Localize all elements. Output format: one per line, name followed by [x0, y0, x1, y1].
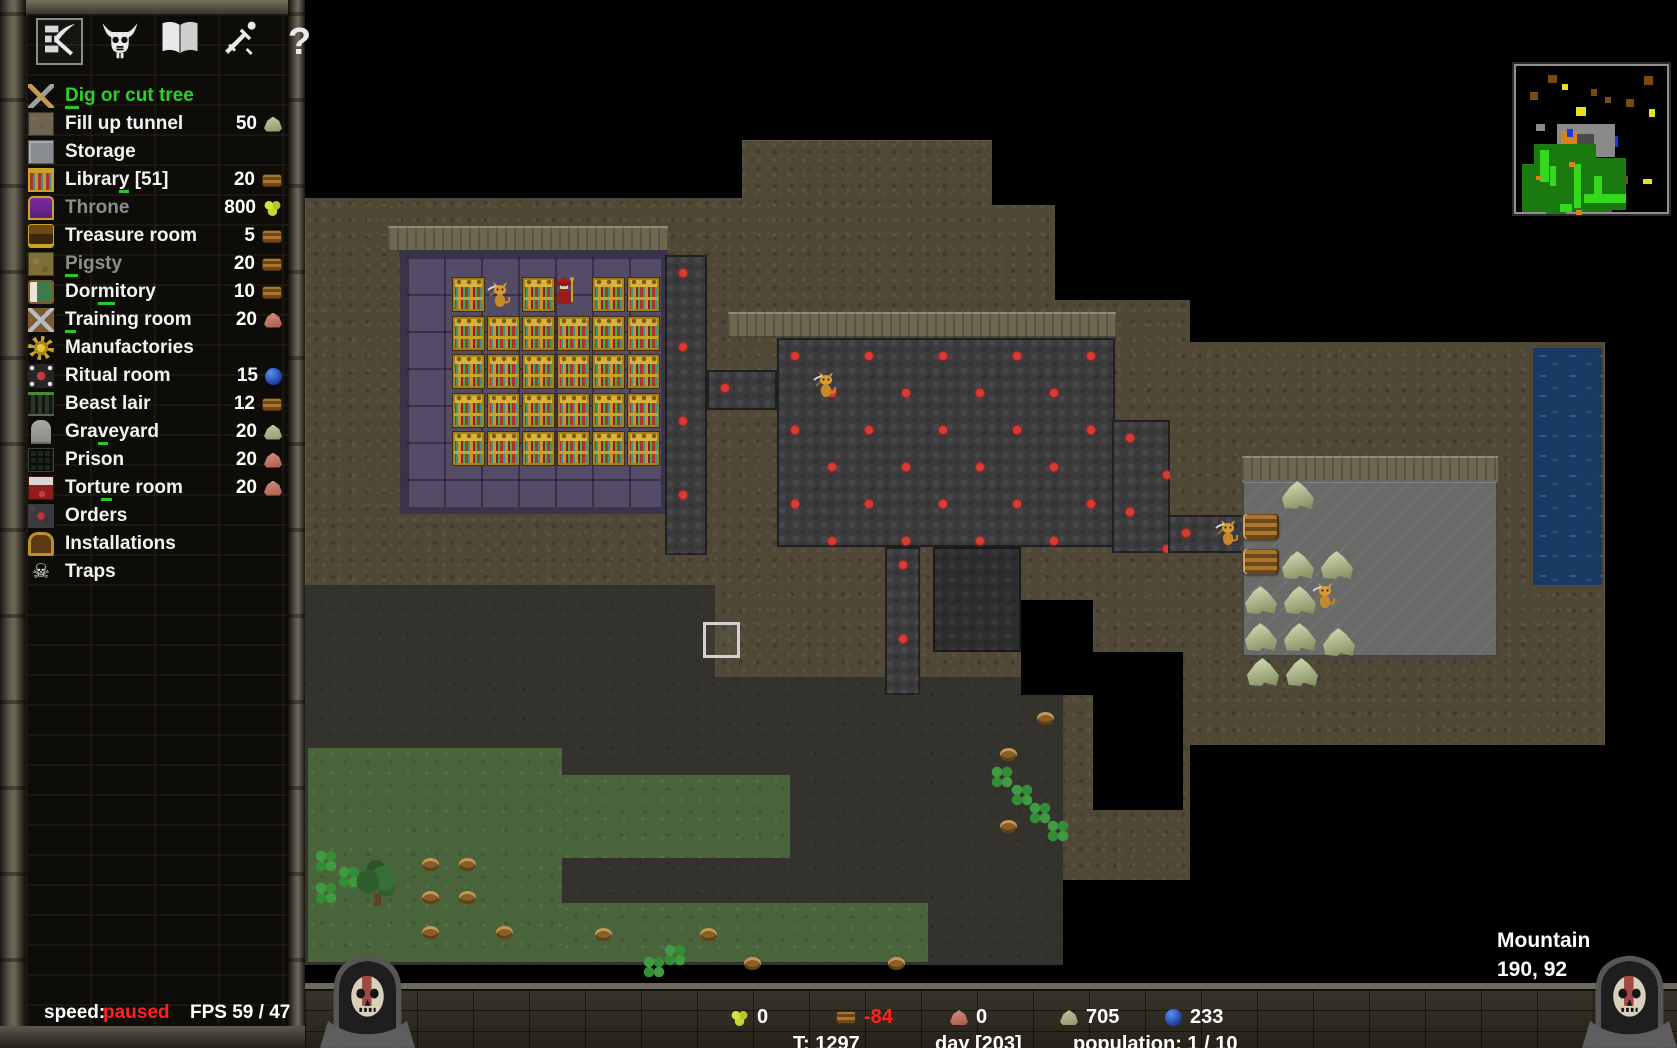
selection-cursor — [703, 622, 740, 658]
bookshelf — [627, 277, 660, 312]
traps-icon: ☠ — [28, 560, 54, 584]
map-region-black — [1055, 205, 1677, 300]
bookshelf — [487, 431, 520, 466]
menu-item-storage[interactable]: Storage — [28, 138, 284, 166]
cost-value: 20 — [236, 477, 257, 499]
wood-icon — [262, 286, 282, 299]
bookshelf — [487, 316, 520, 351]
resource-stone: 705 — [1060, 1006, 1119, 1029]
bookshelf — [627, 354, 660, 389]
menu-item-pigsty[interactable]: Pigsty20 — [28, 250, 284, 278]
bookshelf — [557, 354, 590, 389]
open-book-icon — [159, 18, 201, 65]
toolbar-tab-help[interactable]: ? — [276, 18, 323, 65]
question-mark-icon: ? — [288, 22, 311, 62]
frame-left — [0, 0, 26, 1048]
demon-skull-icon — [99, 18, 141, 65]
imp-creature[interactable] — [486, 280, 514, 315]
tree — [354, 860, 400, 908]
training-icon — [28, 308, 54, 332]
bookshelf — [522, 354, 555, 389]
minimap-blob-brown — [1591, 89, 1597, 96]
mana-icon — [1165, 1009, 1182, 1026]
map-region-black — [305, 140, 742, 198]
tree-stump — [422, 926, 439, 939]
menu-item-label: Fill up tunnel — [65, 113, 183, 135]
stone-icon — [264, 117, 282, 132]
build-menu: Dig or cut treeFill up tunnel50StorageLi… — [28, 82, 284, 586]
graveyard-icon — [31, 420, 51, 444]
map-region-cobble — [707, 370, 777, 410]
map-region-walltop — [728, 312, 1116, 338]
iron-icon — [264, 313, 282, 328]
bookshelf — [487, 393, 520, 428]
stone-icon — [1060, 1010, 1078, 1025]
storage-icon — [28, 140, 54, 164]
bush — [313, 880, 339, 906]
bookshelf — [452, 316, 485, 351]
cost-value: 12 — [234, 393, 255, 415]
menu-item-label: Training room — [65, 309, 192, 331]
cost-value: 20 — [236, 449, 257, 471]
minimap-blob-yellow — [1576, 107, 1586, 116]
minimap-blob-lightgreen — [1540, 150, 1549, 182]
map-region-black — [1021, 600, 1093, 695]
menu-item-label: Library [51] — [65, 169, 169, 191]
bookshelf — [452, 431, 485, 466]
toolbar-tab-minions[interactable] — [96, 18, 143, 65]
tree-stump — [459, 891, 476, 904]
bookshelf — [452, 393, 485, 428]
beast-icon — [28, 392, 54, 416]
map-region-black — [1093, 652, 1183, 810]
turn-counter: T: 1297 — [793, 1033, 860, 1048]
menu-item-label: Installations — [65, 533, 176, 555]
tree-stump — [1000, 820, 1017, 833]
fps-counter: FPS 59 / 47 — [190, 1002, 290, 1024]
game-screen: Mountain 190, 92 0-840705233T: 1297day [… — [0, 0, 1677, 1048]
imp-creature[interactable] — [812, 370, 840, 405]
menu-item-label: Treasure room — [65, 225, 197, 247]
menu-item-training-room[interactable]: Training room20 — [28, 306, 284, 334]
bookshelf — [592, 354, 625, 389]
minimap-blob-brown — [1605, 97, 1611, 103]
bottom-bar: 0-840705233T: 1297day [203]population: 1… — [305, 983, 1677, 1048]
minimap-blob-lightgreen — [1594, 176, 1602, 202]
resource-mana: 233 — [1165, 1006, 1223, 1029]
menu-item-beast-lair[interactable]: Beast lair12 — [28, 390, 284, 418]
location-label: Mountain — [1497, 929, 1590, 953]
bookshelf — [557, 316, 590, 351]
cost-value: 5 — [244, 225, 255, 247]
treasure-icon — [28, 224, 54, 248]
wood-icon — [262, 174, 282, 187]
cost-value: 20 — [234, 253, 255, 275]
bush — [641, 954, 667, 980]
menu-item-label: Pigsty — [65, 253, 122, 275]
tree-stump — [1037, 712, 1054, 725]
menu-item-dormitory[interactable]: Dormitory10 — [28, 278, 284, 306]
menu-item-label: Traps — [65, 561, 116, 583]
bookshelf — [522, 393, 555, 428]
bookshelf — [557, 393, 590, 428]
minimap-blob-lightgreen — [1550, 166, 1556, 186]
menu-item-label: Manufactories — [65, 337, 194, 359]
menu-item-label: Torture room — [65, 477, 183, 499]
frame-bottom — [0, 1026, 305, 1048]
wood-pile — [1243, 514, 1279, 539]
tree-stump — [459, 858, 476, 871]
map-region-black — [1190, 745, 1605, 880]
stone-icon — [264, 425, 282, 440]
wood-icon — [262, 230, 282, 243]
menu-item-label: Orders — [65, 505, 127, 527]
iron-icon — [950, 1010, 968, 1025]
menu-item-label: Beast lair — [65, 393, 151, 415]
tree-stump — [700, 928, 717, 941]
map-region-walltop — [388, 226, 668, 252]
tree-stump — [888, 957, 905, 970]
menu-item-label: Graveyard — [65, 421, 159, 443]
minimap-blob-orange — [1536, 176, 1541, 180]
bookshelf — [592, 393, 625, 428]
minimap-blob-yellow — [1562, 84, 1568, 90]
map-region-cobble — [665, 255, 707, 555]
bookshelf — [592, 277, 625, 312]
frame-right — [288, 0, 305, 1048]
toolbar: ? — [36, 18, 323, 65]
toolbar-tab-build[interactable] — [36, 18, 83, 65]
iron-icon — [264, 481, 282, 496]
resource-gold: 0 — [730, 1006, 768, 1029]
map-region-black — [1190, 300, 1677, 342]
resource-wood: -84 — [836, 1006, 893, 1029]
skull-statue-icon — [1582, 950, 1677, 1048]
resource-iron-value: 0 — [976, 1006, 987, 1029]
bookshelf — [627, 393, 660, 428]
dig-icon — [28, 84, 54, 108]
cost-value: 800 — [224, 197, 256, 219]
cursor-coordinates: 190, 92 — [1497, 958, 1567, 982]
map-region-cobble — [885, 547, 920, 695]
bush — [1045, 818, 1071, 844]
wood-icon — [836, 1011, 856, 1024]
ritual-icon — [28, 364, 54, 388]
library-icon — [28, 168, 54, 192]
minimap-blob-orange — [1576, 210, 1582, 215]
gold-icon — [263, 200, 282, 216]
mana-icon — [265, 368, 282, 385]
resource-stone-value: 705 — [1086, 1006, 1119, 1029]
sword-icon — [220, 19, 260, 64]
bookshelf — [522, 316, 555, 351]
minimap-blob-lightgreen — [1560, 204, 1572, 212]
bookshelf — [452, 277, 485, 312]
resource-wood-value: -84 — [864, 1006, 893, 1029]
menu-item-label: Dormitory — [65, 281, 156, 303]
menu-item-label: Prison — [65, 449, 124, 471]
bookshelf — [592, 316, 625, 351]
menu-item-torture-room[interactable]: Torture room20 — [28, 474, 284, 502]
menu-item-prison[interactable]: Prison20 — [28, 446, 284, 474]
resource-mana-value: 233 — [1190, 1006, 1223, 1029]
prison-icon — [28, 448, 54, 472]
bookshelf — [522, 431, 555, 466]
skull-statue-icon — [320, 950, 415, 1048]
menu-item-installations[interactable]: Installations — [28, 530, 284, 558]
map-region-water — [1533, 348, 1602, 585]
menu-item-throne[interactable]: Throne800 — [28, 194, 284, 222]
frame-top — [0, 0, 305, 14]
manufactory-icon — [28, 336, 54, 360]
menu-item-manufactories[interactable]: Manufactories — [28, 334, 284, 362]
menu-item-orders[interactable]: Orders — [28, 502, 284, 530]
tree-stump — [1000, 748, 1017, 761]
imp-creature[interactable] — [1214, 518, 1242, 553]
dormitory-icon — [28, 280, 54, 304]
bookshelf — [627, 431, 660, 466]
map-region-storage — [1242, 480, 1498, 657]
day-counter: day [203] — [935, 1033, 1022, 1048]
menu-item-treasure-room[interactable]: Treasure room5 — [28, 222, 284, 250]
cost-value: 15 — [237, 365, 258, 387]
cost-value: 20 — [234, 169, 255, 191]
minimap-blob-blue — [1615, 136, 1618, 147]
bookshelf — [452, 354, 485, 389]
menu-item-library-51[interactable]: Library [51]20 — [28, 166, 284, 194]
speed-label: speed: — [44, 1002, 105, 1024]
imp-creature[interactable] — [1311, 581, 1339, 616]
minimap-blob-brown — [1530, 92, 1538, 100]
minimap-blob-brown — [1626, 99, 1634, 107]
bookshelf — [627, 316, 660, 351]
minimap[interactable] — [1514, 64, 1669, 214]
throne-icon — [28, 196, 54, 220]
menu-item-label: Throne — [65, 197, 129, 219]
population-counter: population: 1 / 10 — [1073, 1033, 1237, 1048]
status-row: speed: paused FPS 59 / 47 — [0, 1002, 305, 1028]
menu-item-label: Ritual room — [65, 365, 171, 387]
sidebar: ? Dig or cut treeFill up tunnel50Storage… — [0, 0, 305, 1048]
wood-pile — [1243, 549, 1279, 574]
tree-stump — [744, 957, 761, 970]
map-region-cobble_dim — [933, 547, 1021, 652]
minimap-blob-yellow — [1643, 179, 1652, 184]
speed-value[interactable]: paused — [103, 1002, 170, 1024]
menu-item-fill-up-tunnel[interactable]: Fill up tunnel50 — [28, 110, 284, 138]
map-region-black — [1605, 140, 1677, 965]
menu-item-traps[interactable]: ☠Traps — [28, 558, 284, 586]
map-region-grass — [562, 775, 790, 858]
minimap-blob-blue — [1567, 129, 1573, 137]
tree-stump — [422, 891, 439, 904]
fill-icon — [28, 112, 54, 136]
keeper-creature[interactable] — [549, 274, 579, 311]
bookshelf — [592, 431, 625, 466]
cost-value: 20 — [236, 421, 257, 443]
wood-icon — [262, 398, 282, 411]
gold-icon — [730, 1010, 749, 1026]
torture-icon — [28, 476, 54, 500]
cost-value: 10 — [234, 281, 255, 303]
minimap-blob-lightgreen — [1574, 164, 1581, 208]
minimap-blob-brown — [1548, 75, 1557, 83]
resource-iron: 0 — [950, 1006, 987, 1029]
menu-item-graveyard[interactable]: Graveyard20 — [28, 418, 284, 446]
map-region-walltop — [1242, 456, 1498, 482]
minimap-blob-brown — [1644, 76, 1653, 85]
wood-icon — [262, 258, 282, 271]
cost-value: 50 — [236, 113, 257, 135]
bookshelf — [487, 354, 520, 389]
toolbar-tab-library[interactable] — [156, 18, 203, 65]
bookshelf — [557, 431, 590, 466]
minimap-blob-lightgreen — [1584, 194, 1626, 203]
orders-icon — [28, 504, 54, 528]
iron-icon — [264, 453, 282, 468]
map-region-grass — [562, 903, 928, 962]
map-region-cobble — [1112, 420, 1170, 553]
installations-icon — [28, 532, 54, 556]
menu-item-label: Storage — [65, 141, 136, 163]
pigsty-icon — [28, 252, 54, 276]
toolbar-tab-military[interactable] — [216, 18, 263, 65]
tree-stump — [496, 926, 513, 939]
pickaxe-wall-icon — [40, 19, 80, 64]
tree-stump — [422, 858, 439, 871]
tree-stump — [595, 928, 612, 941]
minimap-blob-orange — [1569, 162, 1575, 167]
menu-item-dig-or-cut-tree[interactable]: Dig or cut tree — [28, 82, 284, 110]
cost-value: 20 — [236, 309, 257, 331]
menu-item-ritual-room[interactable]: Ritual room15 — [28, 362, 284, 390]
minimap-blob-grey — [1536, 124, 1545, 131]
resource-gold-value: 0 — [757, 1006, 768, 1029]
menu-item-label: Dig or cut tree — [65, 85, 194, 107]
minimap-blob-yellow — [1649, 109, 1655, 117]
